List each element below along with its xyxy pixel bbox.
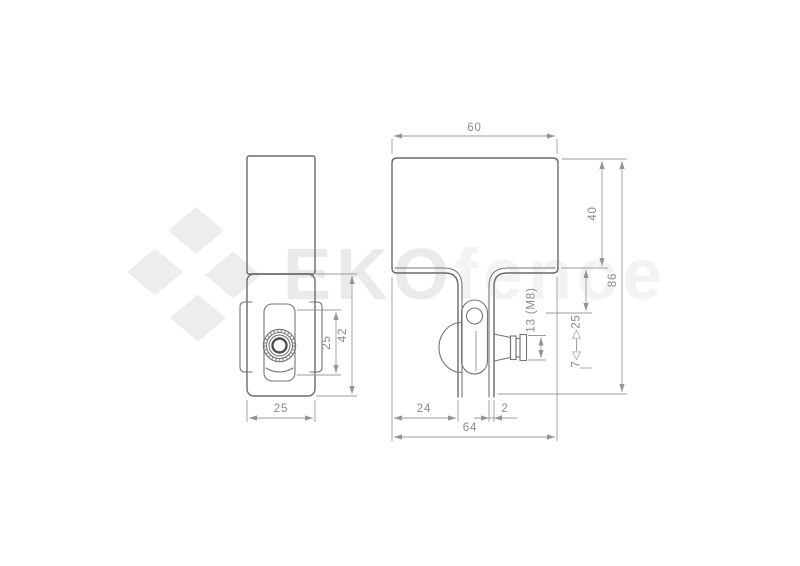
diamond-left bbox=[127, 249, 183, 296]
front-adjust-range-label: 7◁—▷25 bbox=[571, 314, 583, 367]
side-clamp-height-label: 25 bbox=[321, 335, 333, 349]
bolt-bore bbox=[273, 339, 287, 353]
front-top-width-label: 60 bbox=[467, 122, 481, 134]
front-bolt bbox=[494, 334, 527, 361]
drawing-svg: EKOfence 42 bbox=[0, 0, 800, 566]
diamond-bottom bbox=[170, 295, 226, 342]
side-lower-height-label: 42 bbox=[337, 328, 349, 342]
watermark-brand-bold: EKO bbox=[283, 235, 454, 315]
front-total-height-label: 86 bbox=[607, 273, 619, 287]
watermark-brand-light: fence bbox=[454, 235, 667, 315]
front-wall-thickness-label: 2 bbox=[501, 403, 508, 415]
technical-drawing-canvas: EKOfence 42 bbox=[0, 0, 800, 566]
diamond-top bbox=[168, 207, 224, 254]
front-bolt-size-label: 13 (M8) bbox=[526, 287, 538, 332]
front-plate-height-label: 40 bbox=[587, 206, 599, 220]
side-bottom-width-label: 25 bbox=[274, 403, 288, 415]
front-bottom-width-label: 64 bbox=[463, 422, 477, 434]
side-bolt-head bbox=[263, 329, 295, 361]
side-clamp-spring-arc bbox=[266, 368, 293, 372]
side-left-ear bbox=[240, 302, 252, 372]
front-left-offset-label: 24 bbox=[417, 403, 431, 415]
diamond-right bbox=[205, 252, 261, 299]
brand-diamond-logo-icon bbox=[127, 207, 261, 342]
